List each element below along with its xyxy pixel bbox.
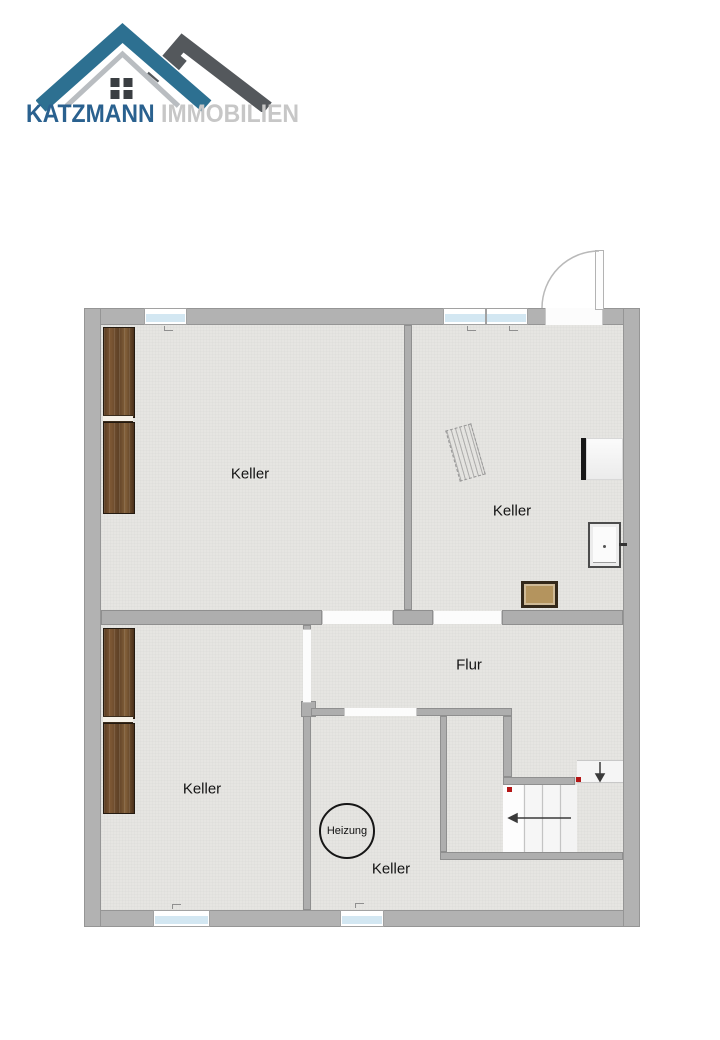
hatch-handle <box>619 543 627 546</box>
company-logo: KATZMANNIMMOBILIEN <box>0 0 300 140</box>
wall-divider-right <box>502 610 623 625</box>
stair-riser <box>524 785 525 852</box>
passage-keller-tr-flur <box>433 611 502 624</box>
wall-outer-left <box>84 308 101 927</box>
door-keller-mid <box>344 708 417 716</box>
door-keller-bl <box>303 629 311 703</box>
floorplan-page: KATZMANNIMMOBILIEN <box>0 0 720 1040</box>
brand-suffix: IMMOBILIEN <box>161 100 299 128</box>
room-label-keller-bottom-left: Keller <box>183 781 221 798</box>
shelf-top-left-lower <box>103 422 135 514</box>
logo-wordmark: KATZMANNIMMOBILIEN <box>26 100 299 129</box>
appliance-box <box>586 438 623 480</box>
wall-divider-left <box>101 610 322 625</box>
passage-keller-tl-flur <box>322 611 393 624</box>
shelf-top-left-upper <box>103 327 135 418</box>
entry-door-opening <box>545 308 603 325</box>
window-glass <box>155 916 208 924</box>
logo-roofs-icon <box>36 22 282 112</box>
room-label-keller-top-right: Keller <box>493 503 531 520</box>
window-bottom-middle <box>340 910 384 927</box>
shelf-divider <box>103 716 133 723</box>
sill-tick <box>164 326 173 331</box>
entry-door-leaf <box>595 250 604 310</box>
sill-tick <box>355 903 364 908</box>
shelf-divider <box>103 415 133 422</box>
shelf-bottom-left-upper <box>103 628 135 719</box>
brand-name: KATZMANN <box>26 100 155 128</box>
window-top-right-double <box>443 308 528 325</box>
stair-riser <box>560 785 561 852</box>
sill-tick <box>509 326 518 331</box>
stair-marker <box>507 787 512 792</box>
wall-stair-inner-v <box>503 716 512 777</box>
stair-steps <box>503 785 577 852</box>
room-label-keller-top-left: Keller <box>231 466 269 483</box>
wall-stair-south <box>440 852 623 860</box>
wall-divider-middle <box>393 610 433 625</box>
window-bottom-left <box>153 910 210 927</box>
window-mullion <box>485 309 487 324</box>
room-label-keller-bottom-middle: Keller <box>372 861 410 878</box>
heating-symbol: Heizung <box>319 803 375 859</box>
window-top-left <box>144 308 187 325</box>
shelf-bottom-left-lower <box>103 723 135 814</box>
hatch-knob <box>603 545 606 548</box>
wall-stair-west <box>440 716 447 852</box>
stair-marker <box>576 777 581 782</box>
sill-tick <box>172 904 181 909</box>
sill-tick <box>467 326 476 331</box>
door-swing-arc <box>542 251 599 308</box>
wooden-crate <box>521 581 558 608</box>
wall-upper-partition <box>404 325 412 610</box>
heating-label: Heizung <box>327 825 367 837</box>
wall-stair-inner-h <box>503 777 575 785</box>
room-label-flur: Flur <box>456 657 482 674</box>
stair-landing <box>577 760 623 783</box>
stair-riser <box>542 785 543 852</box>
window-glass <box>146 314 185 322</box>
wall-outer-right <box>623 308 640 927</box>
window-glass <box>342 916 382 924</box>
